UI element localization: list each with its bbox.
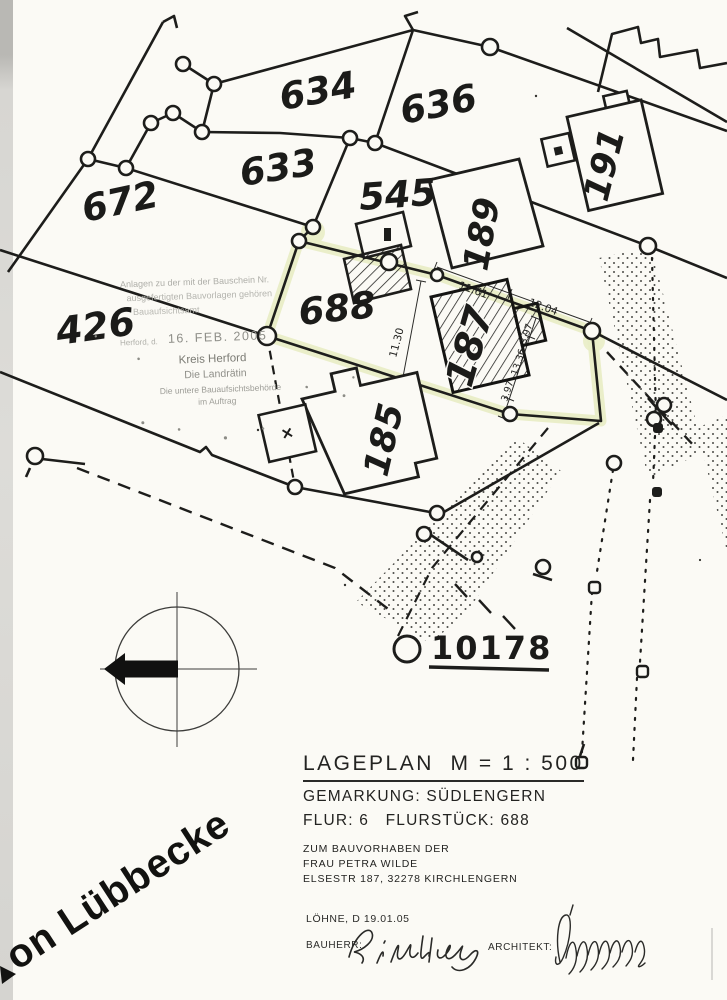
place-date: LÖHNE, D 19.01.05 [306,913,410,925]
architekt-label: ARCHITEKT: [488,942,552,953]
north-arrow-compass [100,592,257,747]
flur-line: FLUR: 6 FLURSTÜCK: 688 [303,812,584,830]
building-185-outline [253,355,440,509]
plan-title: LAGEPLAN M = 1 : 500 [303,752,584,782]
parcel-label-636: 636 [397,76,481,133]
dimension-3-97-bottom: 3.97 [499,379,516,403]
parcel-label-672: 672 [78,173,162,231]
survey-point-label: 10178 [431,629,552,667]
stamp-by-order: im Auftrag [198,395,237,406]
title-block: LAGEPLAN M = 1 : 500 GEMARKUNG: SÜDLENGE… [303,752,584,885]
lamp-post-symbol [27,448,43,464]
street-name-arrow-tail [0,966,16,984]
parcel-label-688: 688 [296,283,377,334]
dimension-11-30: 11.30 [387,327,406,359]
stamp-date: 16. FEB. 2005 [168,328,268,345]
stamp-office: Die untere Bauaufsichtsbehörde [160,382,282,396]
gemarkung-line: GEMARKUNG: SÜDLENGERN [303,788,584,806]
stamp-line1: Anlagen zu der mit der Bauschein Nr. [120,274,269,289]
purpose-line-1: ZUM BAUVORHABEN DER [303,843,584,855]
stamp-authority: Kreis Herford [178,352,246,366]
parcel-label-634: 634 [276,63,360,119]
stamp-place: Herford, d. [120,337,158,347]
parcel-label-545: 545 [358,171,438,219]
parcel-label-633: 633 [237,140,320,195]
purpose-line-3: ELSESTR 187, 32278 KIRCHLENGERN [303,873,584,885]
stamp-signer: Die Landrätin [184,367,247,381]
scanned-site-plan-page: 10178 634 636 672 633 545 426 688 191 18… [0,0,727,1000]
stamp-line3: Bauaufsichtsamt [133,305,200,317]
stamp-line2: ausgefertigten Bauvorlagen gehören [126,288,272,303]
bauherr-label: BAUHERR: [306,940,362,951]
architekt-signature [556,905,645,974]
purpose-line-2: FRAU PETRA WILDE [303,858,584,870]
bauherr-signature [349,930,478,970]
